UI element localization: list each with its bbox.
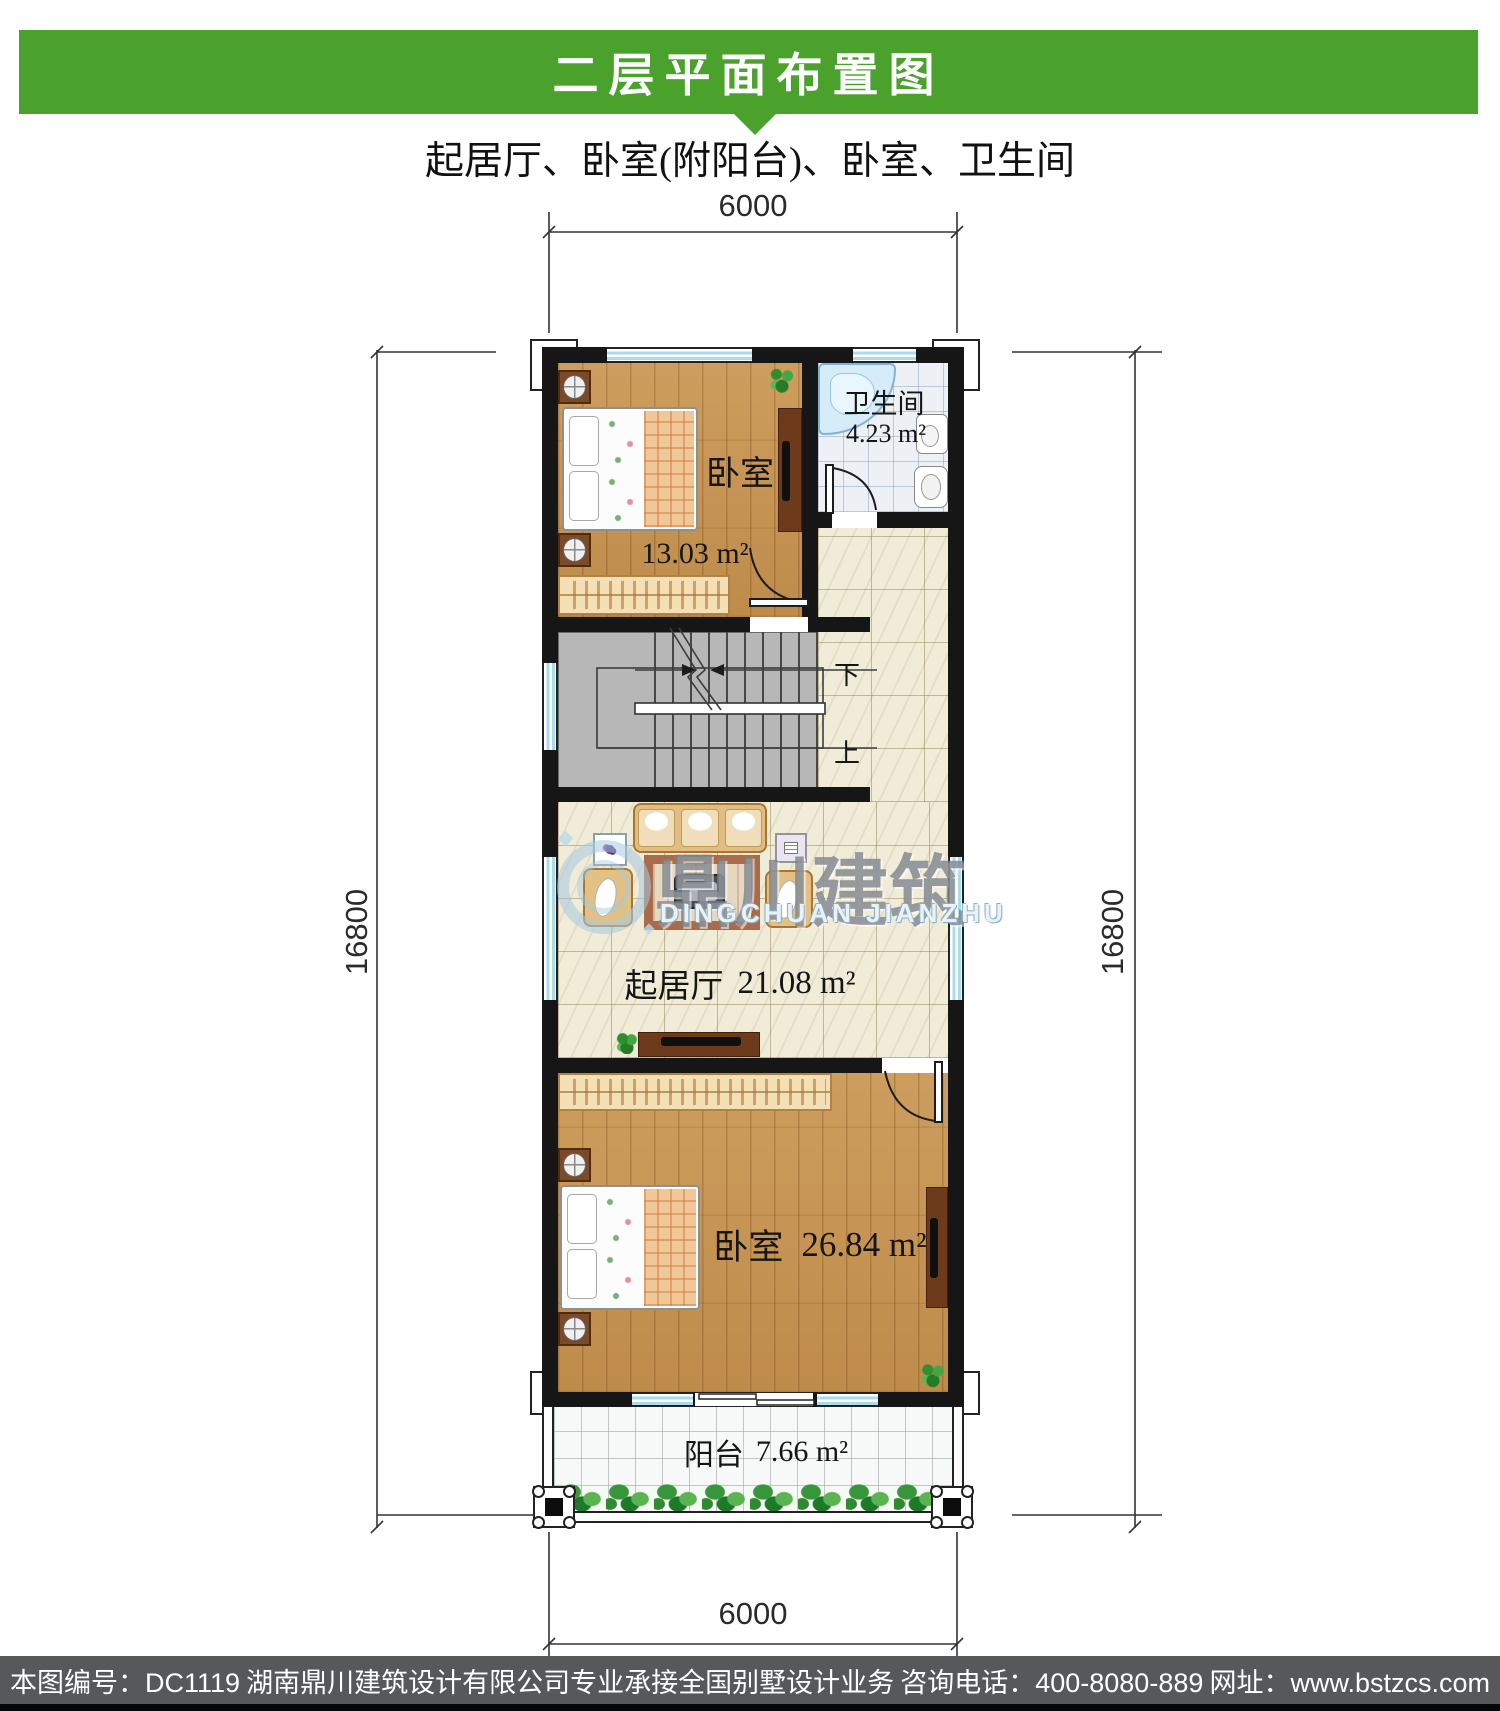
- pillow: [567, 1194, 597, 1244]
- bathroom-name: 卫生间: [824, 382, 944, 421]
- floor-plan-page: 二层平面布置图 起居厅、卧室(附阳台)、卧室、卫生间 6000 6000 168…: [0, 0, 1500, 1711]
- pillar-corner-circle: [961, 1516, 974, 1529]
- living-room-label: 起居厅 21.08 m²: [590, 959, 890, 1007]
- window-top-left: [607, 347, 752, 363]
- footer-company: 湖南鼎川建筑设计有限公司专业承接全国别墅设计业务: [246, 1661, 894, 1700]
- dimension-bottom: 6000: [678, 1596, 828, 1632]
- bedroom-bottom-name: 卧室: [713, 1219, 783, 1270]
- wall-bedroom-top-bottom: [808, 617, 870, 632]
- sink: [914, 466, 948, 508]
- dimension-left: 16800: [327, 882, 387, 982]
- living-room-area: 21.08 m²: [737, 965, 855, 1002]
- wardrobe-top-bedroom: [558, 575, 730, 615]
- hanger-icons: [564, 1079, 826, 1105]
- balcony-name: 阳台: [684, 1430, 744, 1474]
- pillar-corner-circle: [930, 1485, 943, 1498]
- nightstand: [558, 370, 591, 404]
- bedroom-bottom-label: 卧室 26.84 m²: [670, 1219, 970, 1270]
- balcony-parapet-bottom: [542, 1511, 964, 1523]
- dimension-top: 6000: [678, 188, 828, 224]
- watermark-logo-inner-ring: [577, 860, 631, 914]
- wall-stair-bottom: [558, 787, 870, 802]
- title-banner: 二层平面布置图: [19, 30, 1478, 114]
- footer-phone: 咨询电话：400-8080-889: [900, 1661, 1203, 1700]
- pillar-corner-circle: [563, 1516, 576, 1529]
- nightstand: [558, 1312, 591, 1346]
- plant-icon: [616, 1032, 638, 1054]
- pillar-corner-circle: [563, 1485, 576, 1498]
- pillow: [569, 471, 599, 521]
- stair-down-label: 下: [827, 655, 867, 692]
- footer-drawing-number: 本图编号：DC1119: [10, 1661, 240, 1700]
- pillar-corner-circle: [532, 1485, 545, 1498]
- balcony-label: 阳台 7.66 m²: [616, 1430, 916, 1474]
- pillar-core: [943, 1498, 961, 1516]
- bed-duvet: [600, 1190, 641, 1305]
- wall-bedroom-bathroom: [802, 363, 818, 617]
- window-left-stair: [542, 663, 558, 750]
- nightstand: [558, 1148, 591, 1182]
- hanger-icons: [564, 581, 724, 609]
- nightstand: [558, 533, 591, 567]
- plant-icon: [768, 366, 796, 394]
- bed-blanket: [644, 411, 694, 527]
- footer-website: 网址：www.bstzcs.com: [1209, 1661, 1490, 1700]
- lamp-icon: [563, 375, 586, 399]
- pillar-corner-circle: [532, 1516, 545, 1529]
- dimension-right: 16800: [1083, 882, 1143, 982]
- room-list-subtitle: 起居厅、卧室(附阳台)、卧室、卫生间: [0, 130, 1500, 186]
- wall-living-bottom: [558, 1058, 882, 1073]
- stair-treads: [638, 632, 818, 788]
- balcony-sliding-door-gap: [695, 1392, 813, 1407]
- bedroom-bottom-area: 26.84 m²: [801, 1225, 926, 1265]
- pillow: [567, 1249, 597, 1299]
- bed-top-bedroom: [562, 407, 698, 531]
- lamp-icon: [563, 538, 586, 562]
- pillar-corner-circle: [930, 1516, 943, 1529]
- living-room-name: 起居厅: [624, 959, 723, 1007]
- pillow: [569, 416, 599, 466]
- tv-icon: [661, 1037, 741, 1046]
- wall-bathroom-bottom: [877, 512, 948, 528]
- bathroom-area: 4.23 m²: [826, 419, 946, 449]
- stair-up-label: 上: [827, 733, 867, 770]
- tv-cabinet-living: [638, 1032, 760, 1057]
- wall-bathroom-bottom: [818, 512, 832, 528]
- wall-bedroom-top-bottom: [558, 617, 750, 632]
- window-left-living: [542, 857, 558, 1000]
- balcony-pillar-left: [533, 1486, 575, 1528]
- window-balcony-left: [632, 1392, 693, 1407]
- lamp-icon: [563, 1153, 586, 1177]
- lamp-icon: [563, 1317, 586, 1341]
- wardrobe-bottom-bedroom: [558, 1073, 832, 1111]
- footer-bar: 本图编号：DC1119 湖南鼎川建筑设计有限公司专业承接全国别墅设计业务 咨询电…: [0, 1656, 1500, 1711]
- pillar-corner-circle: [961, 1485, 974, 1498]
- balcony-area: 7.66 m²: [756, 1435, 848, 1469]
- page-title: 二层平面布置图: [553, 39, 945, 105]
- pillar-core: [545, 1498, 563, 1516]
- bed-duvet: [602, 412, 641, 526]
- plant-icon: [920, 1362, 946, 1388]
- watermark-company-en: DINGCHUAN JIANZHU: [660, 898, 960, 929]
- window-balcony-right: [817, 1392, 878, 1407]
- window-top-right: [853, 347, 916, 363]
- bedroom-top-area: 13.03 m²: [615, 537, 775, 571]
- bedroom-top-name: 卧室: [690, 446, 790, 495]
- balcony-pillar-right: [931, 1486, 973, 1528]
- watermark-logo-icon: [557, 840, 651, 934]
